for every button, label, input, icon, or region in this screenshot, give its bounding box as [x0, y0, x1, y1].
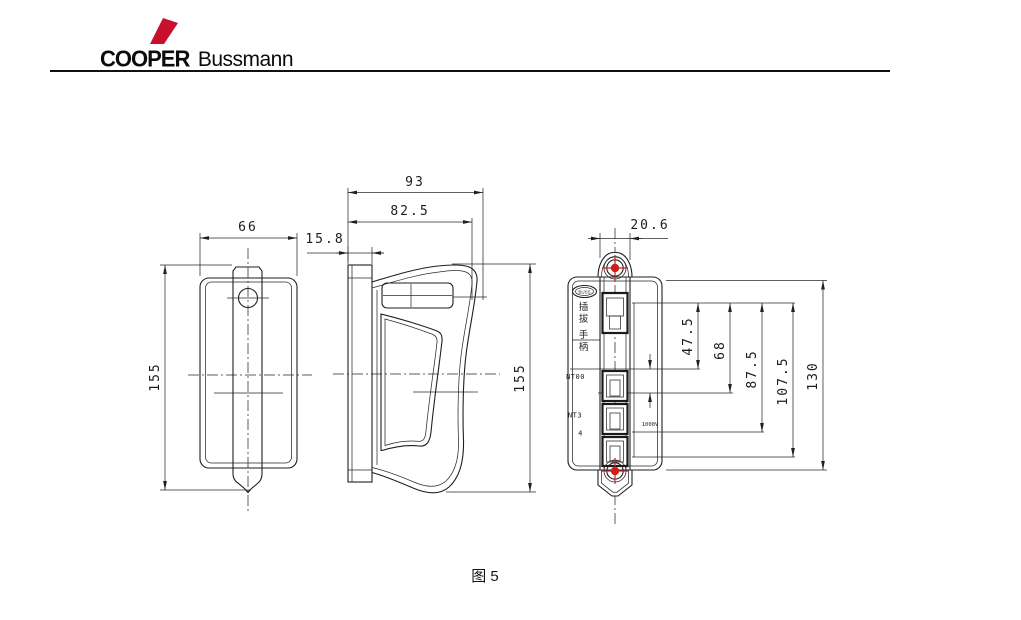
fuse-grip-slot-2 — [603, 404, 628, 434]
vertical-product-label: 插 拔 手 柄 — [579, 301, 589, 353]
datasheet-page: COOPER Bussmann 66 — [0, 0, 1021, 620]
front-view: 66 155 — [148, 220, 312, 512]
dim-68-label: 68 — [713, 340, 728, 360]
grip-inner-profile — [372, 271, 472, 487]
grip-hand-opening-inner — [385, 319, 437, 446]
dim-206-label: 20.6 — [630, 218, 669, 233]
size-label-nt00: NT00 — [566, 373, 585, 381]
dim-158-label: 15.8 — [305, 232, 344, 247]
handle-body-outline — [200, 278, 297, 468]
badge-label: BUSS — [578, 290, 590, 295]
side-plate-outline — [348, 265, 372, 482]
dim-130-label: 130 — [806, 361, 821, 390]
grip-outer-profile — [372, 265, 477, 493]
dim-155f-label: 155 — [148, 362, 163, 391]
label-char-2: 拔 — [579, 313, 589, 325]
voltage-label: 1000V — [642, 422, 659, 428]
dim-825-label: 82.5 — [390, 204, 429, 219]
fuse-grip-slot-1 — [603, 371, 628, 401]
side-view: 93 82.5 15.8 155 — [305, 175, 536, 493]
size-label-4: 4 — [578, 430, 583, 438]
dim-155s-label: 155 — [513, 363, 528, 392]
dim-475-label: 47.5 — [681, 316, 696, 355]
handle-body-inner-outline — [206, 282, 292, 463]
label-char-4: 柄 — [579, 341, 589, 353]
figure-caption: 图 5 — [430, 565, 540, 586]
label-char-1: 插 — [579, 301, 589, 313]
grip-bar-front — [233, 267, 262, 493]
fuse-grip-slot-top — [603, 293, 628, 333]
buss-badge: BUSS — [573, 286, 597, 298]
dim-1075-label: 107.5 — [776, 356, 791, 405]
dim-66-label: 66 — [238, 220, 258, 235]
dim-875-label: 87.5 — [745, 349, 760, 388]
size-label-nt3: NT3 — [568, 412, 582, 420]
label-char-3: 手 — [579, 329, 589, 341]
technical-drawing: 66 155 — [0, 0, 1021, 620]
dim-93-label: 93 — [405, 175, 425, 190]
rear-view: BUSS 插 拔 手 柄 NT00 NT3 4 1000V 20.6 — [566, 218, 827, 524]
